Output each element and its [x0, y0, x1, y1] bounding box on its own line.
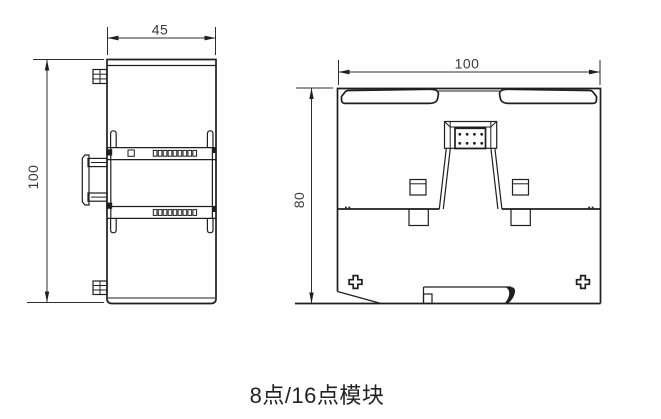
front-view: 100 80 [291, 56, 601, 304]
front-view-latch-windows [409, 180, 530, 226]
arrow-right-icon [205, 36, 216, 41]
side-width-label: 45 [152, 22, 169, 38]
front-height-label: 80 [291, 192, 307, 209]
cross-screw-icon [577, 276, 590, 289]
arrow-left-icon [339, 70, 350, 75]
clip-peg [207, 131, 213, 148]
arrow-down-icon [309, 293, 313, 304]
side-view: 45 100 [25, 22, 216, 304]
module-dimension-drawing: 45 100 [0, 0, 661, 419]
pin-header [455, 128, 486, 148]
side-view-height-dimension: 100 [25, 60, 104, 303]
arrow-down-icon [45, 292, 49, 303]
front-view-top-slots [342, 89, 597, 103]
side-view-top-connector [93, 70, 107, 84]
side-view-body [107, 60, 216, 304]
clip-peg [111, 218, 117, 232]
front-view-parting-line [338, 207, 601, 209]
side-view-width-dimension: 45 [108, 22, 216, 56]
drawing-caption: 8点/16点模块 [250, 378, 385, 410]
front-view-body [295, 89, 601, 304]
technical-drawing-page: { "caption": { "text": "8点/16点模块" }, "si… [0, 0, 661, 419]
arrow-left-icon [108, 36, 119, 41]
side-view-bottom-connector [93, 281, 107, 295]
arrow-right-icon [589, 70, 600, 75]
front-width-label: 100 [455, 56, 480, 72]
clip-peg [207, 218, 213, 232]
side-view-bottom-terminal-strip [107, 207, 216, 233]
side-height-label: 100 [25, 165, 41, 190]
side-view-top-terminal-strip [107, 131, 216, 160]
cross-screw-icon [349, 276, 362, 289]
latch-hook [505, 287, 515, 303]
arrow-up-icon [309, 88, 313, 99]
front-view-expansion-connector [439, 122, 502, 210]
front-view-width-dimension: 100 [339, 56, 601, 86]
arrow-up-icon [45, 60, 49, 71]
front-view-din-rail-ledge [424, 287, 516, 304]
front-view-height-dimension: 80 [291, 88, 333, 304]
clip-peg [111, 131, 117, 148]
